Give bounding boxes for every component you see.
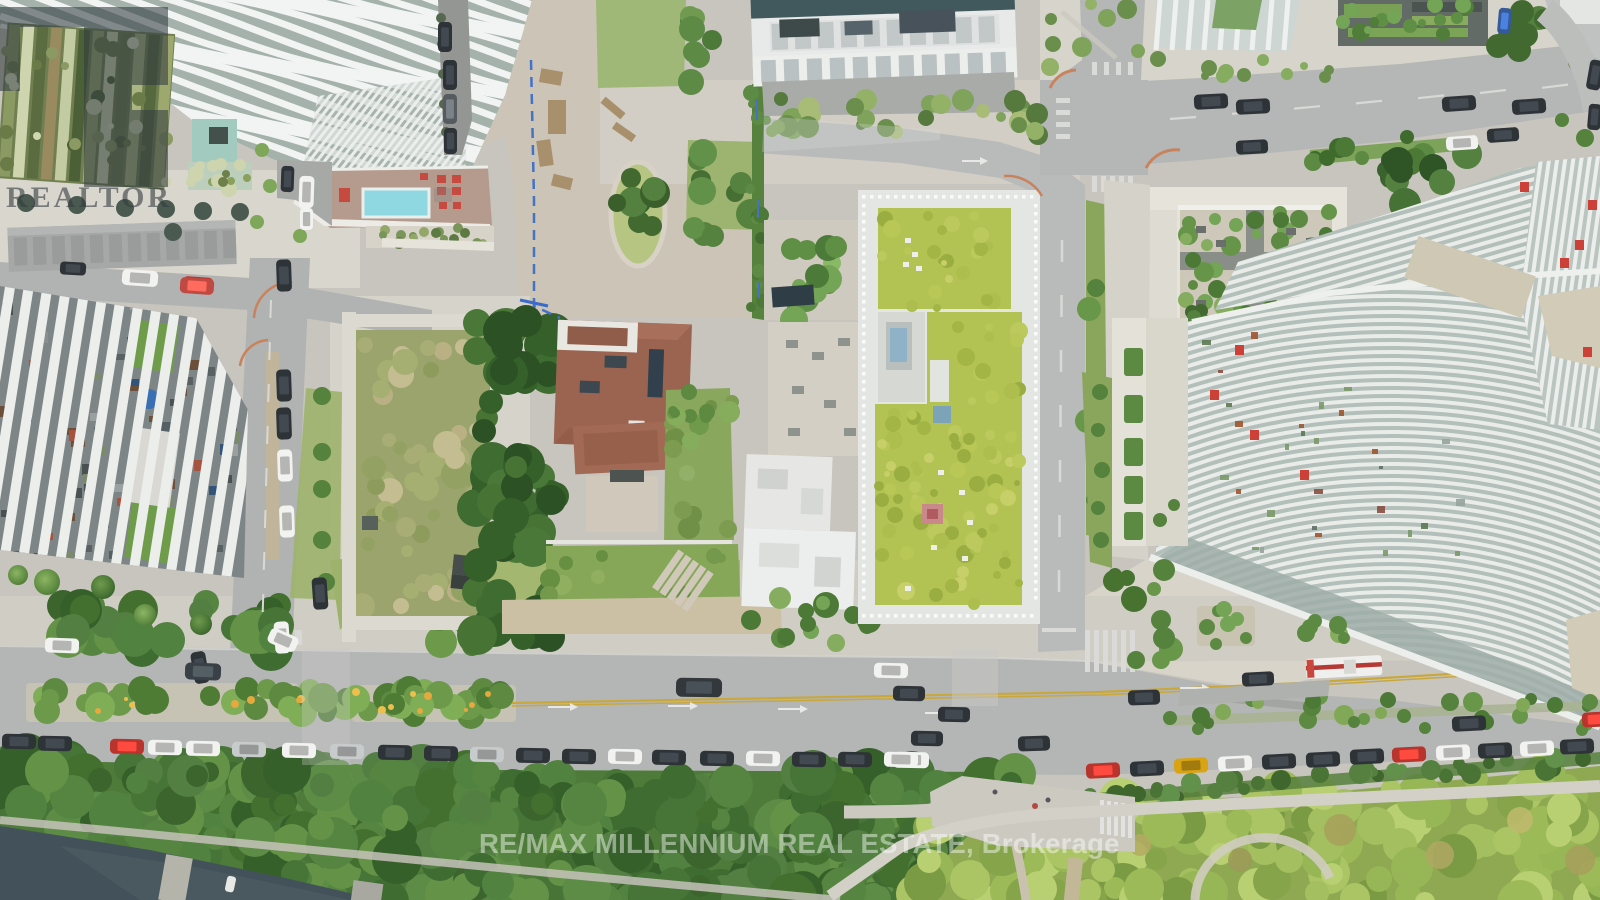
- svg-text:REALTOR: REALTOR: [6, 181, 172, 214]
- svg-text:RE/MAX MILLENNIUM REAL ESTATE,: RE/MAX MILLENNIUM REAL ESTATE, Brokerage: [479, 828, 1120, 859]
